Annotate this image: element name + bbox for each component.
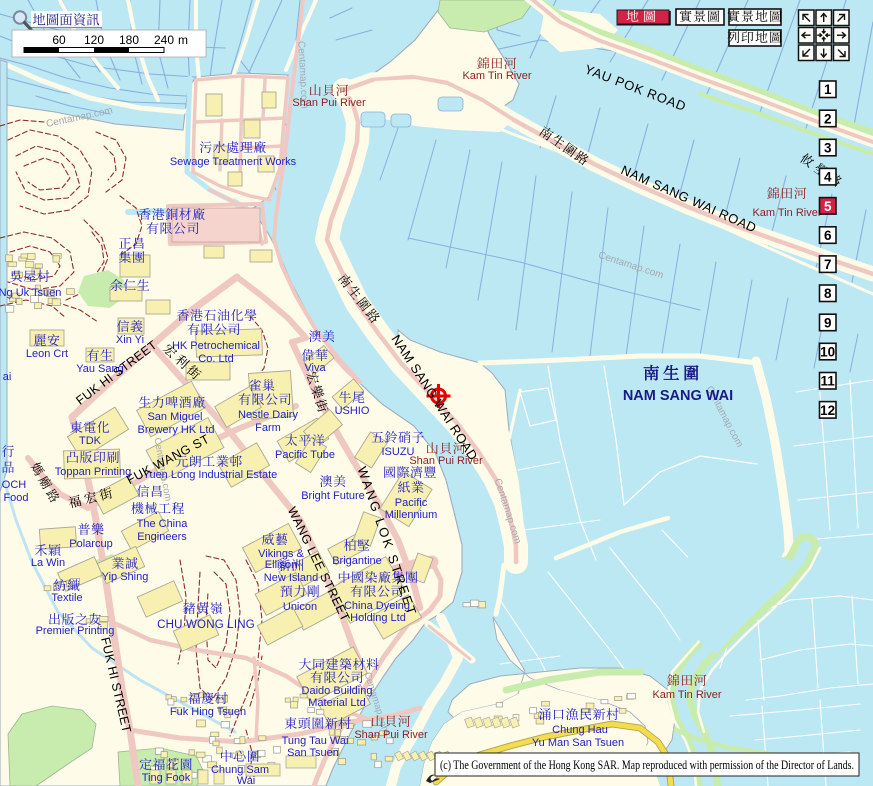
- svg-text:5: 5: [824, 199, 832, 214]
- svg-text:8: 8: [824, 286, 832, 301]
- svg-text:Kam Tin River: Kam Tin River: [652, 689, 721, 701]
- svg-text:Fuk Hing Tsuen: Fuk Hing Tsuen: [170, 706, 246, 718]
- svg-text:中心圍: 中心圍: [220, 746, 261, 765]
- svg-text:牛尾: 牛尾: [338, 387, 365, 406]
- svg-text:預力剛: 預力剛: [280, 581, 321, 600]
- svg-text:豬黃嶺: 豬黃嶺: [183, 598, 224, 617]
- svg-text:Unicon: Unicon: [283, 601, 317, 613]
- svg-text:Daido Building: Daido Building: [302, 685, 373, 697]
- svg-text:有限公司: 有限公司: [238, 389, 292, 408]
- svg-text:Leon Crt: Leon Crt: [26, 348, 68, 360]
- svg-text:東頭圍新村: 東頭圍新村: [284, 713, 352, 732]
- svg-text:Material Ltd: Material Ltd: [308, 697, 365, 709]
- svg-text:Co. Ltd: Co. Ltd: [198, 353, 233, 365]
- svg-text:有限公司: 有限公司: [310, 667, 364, 686]
- svg-text:ISUZU: ISUZU: [382, 446, 415, 458]
- svg-text:凸版印刷: 凸版印刷: [66, 447, 120, 466]
- svg-text:6: 6: [824, 228, 832, 243]
- svg-text:涌口漁民新村: 涌口漁民新村: [538, 704, 619, 723]
- svg-text:OCH: OCH: [2, 479, 27, 491]
- svg-text:Nestle Dairy: Nestle Dairy: [238, 409, 298, 421]
- svg-text:實景圖: 實景圖: [679, 6, 721, 25]
- svg-text:San Miguel: San Miguel: [147, 411, 202, 423]
- svg-text:11: 11: [821, 374, 836, 389]
- svg-text:4: 4: [824, 170, 832, 185]
- svg-text:Premier Printing: Premier Printing: [36, 625, 115, 637]
- svg-text:五鈴硝子: 五鈴硝子: [371, 427, 425, 446]
- svg-text:Textile: Textile: [51, 592, 82, 604]
- svg-text:La Win: La Win: [31, 557, 65, 569]
- svg-text:信義: 信義: [116, 316, 143, 335]
- svg-text:Xin Yi: Xin Yi: [116, 334, 144, 346]
- svg-text:澳美: 澳美: [319, 471, 346, 490]
- svg-text:Engineers: Engineers: [137, 531, 187, 543]
- svg-text:NAM SANG WAI: NAM SANG WAI: [623, 388, 733, 404]
- svg-text:Holding Ltd: Holding Ltd: [350, 612, 406, 624]
- svg-text:集團: 集團: [118, 247, 145, 266]
- svg-text:污水處理廠: 污水處理廠: [199, 137, 267, 156]
- svg-text:(c) The Government of the Hong: (c) The Government of the Hong Kong SAR.…: [440, 758, 854, 772]
- svg-text:Pacific Tube: Pacific Tube: [275, 449, 335, 461]
- svg-text:麗安: 麗安: [33, 330, 60, 349]
- svg-text:10: 10: [820, 345, 835, 360]
- svg-text:USHIO: USHIO: [335, 405, 370, 417]
- svg-text:有生: 有生: [86, 345, 113, 364]
- svg-text:Shan Pui River: Shan Pui River: [292, 97, 366, 109]
- svg-text:2: 2: [824, 111, 832, 126]
- svg-text:福慶村: 福慶村: [188, 688, 229, 707]
- svg-text:Ng Uk Tsuen: Ng Uk Tsuen: [0, 287, 61, 299]
- svg-text:The China: The China: [137, 518, 189, 530]
- svg-text:Food: Food: [3, 492, 28, 504]
- svg-text:180: 180: [119, 33, 139, 47]
- svg-text:有限公司: 有限公司: [187, 319, 241, 338]
- svg-text:ai: ai: [3, 371, 12, 383]
- svg-text:San Tsuen: San Tsuen: [287, 747, 339, 759]
- svg-text:有限公司: 有限公司: [146, 218, 200, 237]
- svg-text:吳屋村: 吳屋村: [10, 266, 51, 285]
- svg-text:Kam Tin River: Kam Tin River: [462, 70, 531, 82]
- svg-text:Wai: Wai: [237, 775, 256, 786]
- svg-text:Farm: Farm: [255, 422, 281, 434]
- svg-text:Kam Tin River: Kam Tin River: [752, 207, 821, 219]
- svg-text:Yuen Long Industrial Estate: Yuen Long Industrial Estate: [143, 469, 278, 481]
- svg-text:定福花園: 定福花園: [139, 754, 193, 773]
- svg-text:3: 3: [824, 141, 832, 156]
- svg-text:澳美: 澳美: [308, 326, 335, 345]
- svg-text:生力啤酒廠: 生力啤酒廠: [138, 392, 206, 411]
- svg-text:Toppan Printing: Toppan Printing: [55, 466, 131, 478]
- svg-text:m: m: [178, 33, 188, 47]
- svg-text:錦田河: 錦田河: [667, 670, 708, 689]
- svg-text:9: 9: [824, 315, 832, 330]
- svg-text:7: 7: [824, 257, 832, 272]
- svg-text:錦田河: 錦田河: [767, 183, 808, 202]
- svg-text:CHU WONG LING: CHU WONG LING: [157, 619, 255, 631]
- svg-text:實景地圖: 實景地圖: [727, 6, 783, 25]
- svg-text:威藝: 威藝: [261, 529, 288, 548]
- svg-text:240: 240: [154, 33, 174, 47]
- svg-text:東電化: 東電化: [70, 417, 111, 436]
- svg-text:地圖: 地圖: [626, 6, 660, 25]
- svg-text:Yip Shing: Yip Shing: [102, 571, 149, 583]
- svg-text:余仁生: 余仁生: [110, 275, 151, 294]
- svg-text:Sewage Treatment Works: Sewage Treatment Works: [170, 156, 297, 168]
- svg-text:Brigantine: Brigantine: [332, 555, 382, 567]
- svg-text:太平洋: 太平洋: [285, 430, 326, 449]
- svg-text:Polarcup: Polarcup: [69, 538, 112, 550]
- svg-text:柏堅: 柏堅: [343, 535, 370, 554]
- svg-text:Chung Hau: Chung Hau: [552, 724, 608, 736]
- svg-text:普樂: 普樂: [77, 519, 105, 538]
- svg-text:山貝河: 山貝河: [371, 711, 412, 730]
- svg-text:業誠: 業誠: [111, 553, 138, 572]
- svg-text:120: 120: [84, 33, 104, 47]
- svg-text:1: 1: [824, 82, 832, 97]
- svg-text:Millennium: Millennium: [385, 509, 438, 521]
- svg-text:12: 12: [820, 403, 835, 418]
- svg-text:Tung Tau Wai: Tung Tau Wai: [282, 735, 349, 747]
- svg-text:南生圍: 南生圍: [643, 360, 703, 384]
- svg-text:機械工程: 機械工程: [131, 498, 185, 517]
- svg-text:紙業: 紙業: [397, 477, 424, 496]
- svg-text:地圖面資訊: 地圖面資訊: [32, 9, 100, 29]
- svg-text:列印地圖: 列印地圖: [727, 27, 783, 46]
- svg-text:Ting Fook: Ting Fook: [142, 772, 191, 784]
- svg-text:TDK: TDK: [79, 435, 102, 447]
- svg-text:Pacific: Pacific: [395, 497, 428, 509]
- svg-text:Bright Future: Bright Future: [301, 490, 365, 502]
- svg-text:Yu Man San Tsuen: Yu Man San Tsuen: [532, 737, 624, 749]
- svg-text:品: 品: [1, 457, 14, 476]
- svg-text:60: 60: [52, 33, 66, 47]
- svg-text:Shan Pui River: Shan Pui River: [354, 729, 428, 741]
